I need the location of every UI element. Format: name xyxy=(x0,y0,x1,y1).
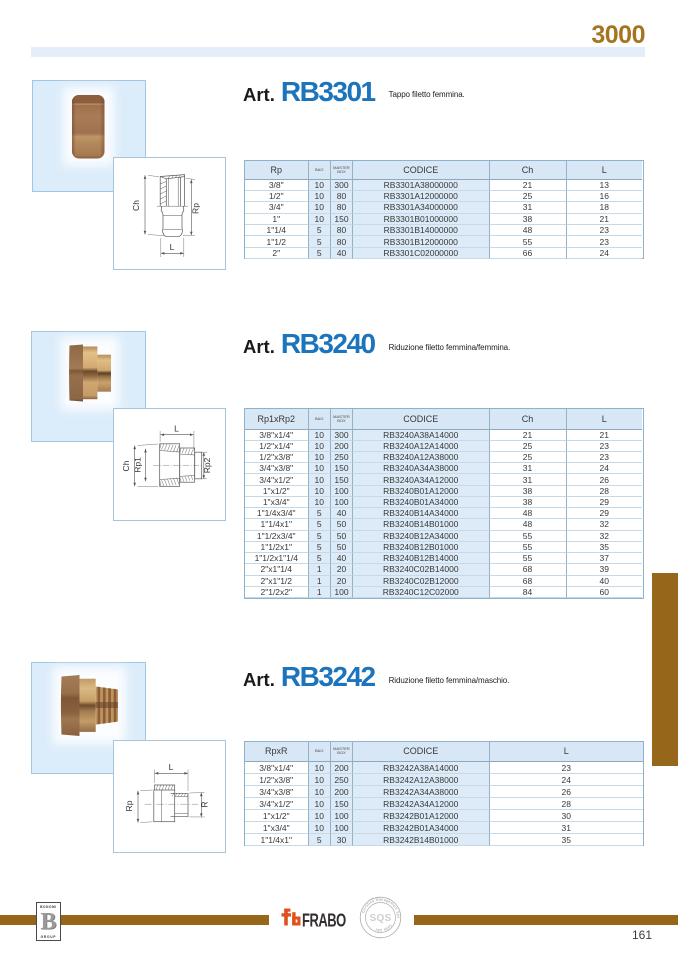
svg-text:Rp: Rp xyxy=(124,800,134,811)
svg-text:SQS: SQS xyxy=(369,913,391,924)
svg-text:L: L xyxy=(169,762,174,772)
svg-text:L: L xyxy=(174,424,179,434)
svg-text:Rp2: Rp2 xyxy=(202,457,212,473)
svg-text:Ch: Ch xyxy=(121,460,131,471)
svg-text:L: L xyxy=(170,242,175,252)
svg-text:Rp: Rp xyxy=(191,203,201,214)
svg-text:Rp1: Rp1 xyxy=(133,457,143,473)
svg-text:R: R xyxy=(200,801,210,807)
svg-text:Ch: Ch xyxy=(131,200,141,211)
svg-text:FRABO: FRABO xyxy=(302,910,346,930)
